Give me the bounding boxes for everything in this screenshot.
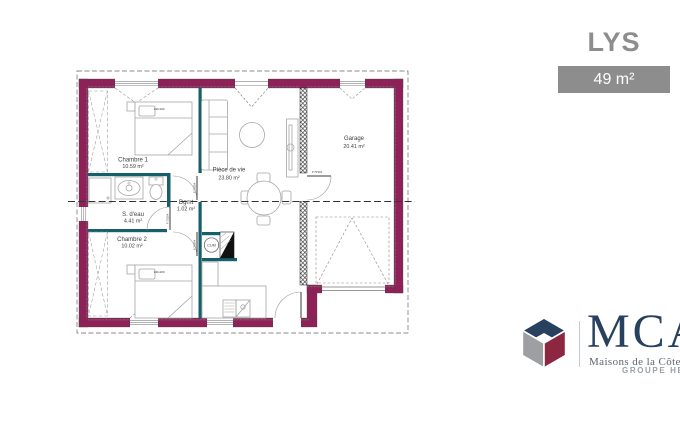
area-badge: 49 m² <box>558 66 670 93</box>
sofa <box>202 100 228 170</box>
kitchen-counter <box>202 262 266 318</box>
dining-table <box>241 173 291 225</box>
room-area-chambre1: 10.59 m² <box>122 164 143 170</box>
door-label: P 75/204 <box>193 239 197 250</box>
water-heater-label: CUM <box>207 244 216 248</box>
toilet <box>149 177 163 200</box>
room-label-dgmt: Dgmt <box>179 200 194 206</box>
room-area-sdeau: 4.41 m² <box>124 219 142 225</box>
brand-name: MCA <box>587 308 680 356</box>
water-heater: CUM <box>204 238 218 252</box>
garage-door <box>316 217 389 294</box>
furniture <box>89 91 299 318</box>
wardrobe-chambre2 <box>89 232 108 316</box>
room-area-dgmt: 1.02 m² <box>177 207 195 213</box>
shower <box>89 178 111 203</box>
title-block: LYS 49 m² <box>558 28 670 93</box>
brand-group: GROUPE HEXAÔM <box>622 366 680 375</box>
room-area-piece-de-vie: 23.80 m² <box>218 176 239 182</box>
sink <box>115 177 143 199</box>
brand-subtitle: Maisons de la Côte Atlantique <box>589 356 680 368</box>
room-label-garage: Garage <box>344 136 365 142</box>
room-label-chambre2: Chambre 2 <box>117 237 147 243</box>
room-area-garage: 20.41 m² <box>343 144 364 150</box>
page: { "title": { "name": "LYS", "area_badge"… <box>0 0 680 425</box>
logo-divider <box>579 321 580 367</box>
door-label: P 75/204 <box>312 170 323 174</box>
tv-unit <box>287 119 299 177</box>
plan-name: LYS <box>558 28 670 58</box>
room-label-sdeau: S. d'eau <box>122 212 144 218</box>
bed-size-label-1: 140x200 <box>153 107 164 111</box>
door-label: P 75/204 <box>193 182 197 193</box>
wardrobe-chambre1 <box>89 91 108 172</box>
room-label-piece-de-vie: Pièce de vie <box>213 168 246 174</box>
room-area-chambre2: 10.02 m² <box>121 244 142 250</box>
room-label-chambre1: Chambre 1 <box>118 158 148 164</box>
mca-logo-cube-icon <box>517 316 571 368</box>
floor-plan: P 75/204 P 75/204 P 75/204 P 75/204 <box>55 55 435 345</box>
technical-shaft <box>220 232 234 258</box>
bed-size-label-2: 140x200 <box>153 270 164 274</box>
door-label: P 75/204 <box>165 213 169 224</box>
coffee-table <box>240 123 265 148</box>
